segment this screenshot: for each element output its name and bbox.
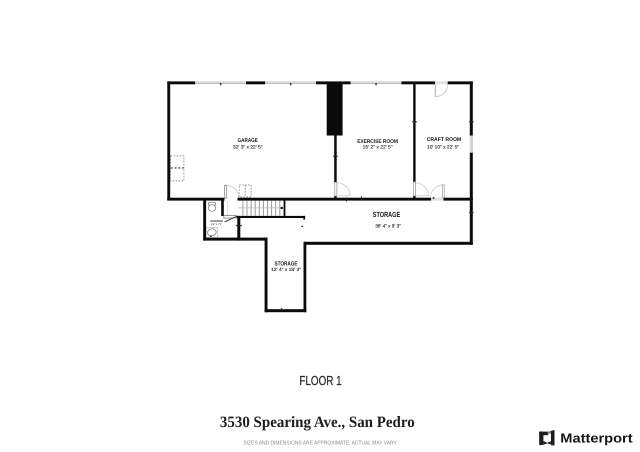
svg-text:SIZES AND DIMENSIONS ARE APPRO: SIZES AND DIMENSIONS ARE APPROXIMATE, AC… [243, 441, 397, 447]
svg-text:4'4" x 7'5": 4'4" x 7'5" [211, 223, 222, 226]
svg-text:15' 2" x 22' 5": 15' 2" x 22' 5" [363, 145, 393, 150]
svg-text:FLOOR 1: FLOOR 1 [299, 373, 341, 388]
svg-text:12' 4" x 18' 3": 12' 4" x 18' 3" [271, 267, 301, 272]
svg-text:36' 4" x 8' 3": 36' 4" x 8' 3" [375, 224, 401, 229]
svg-text:CRAFT ROOM: CRAFT ROOM [427, 137, 462, 143]
svg-text:STORAGE: STORAGE [373, 210, 400, 219]
svg-text:10' 10" x 22' 5": 10' 10" x 22' 5" [427, 145, 459, 150]
svg-text:3530 Spearing Ave., San Pedro: 3530 Spearing Ave., San Pedro [220, 414, 415, 431]
svg-text:32' 3" x 22' 5": 32' 3" x 22' 5" [233, 145, 263, 150]
svg-text:Matterport: Matterport [560, 431, 633, 446]
svg-text:GARAGE: GARAGE [238, 138, 259, 144]
